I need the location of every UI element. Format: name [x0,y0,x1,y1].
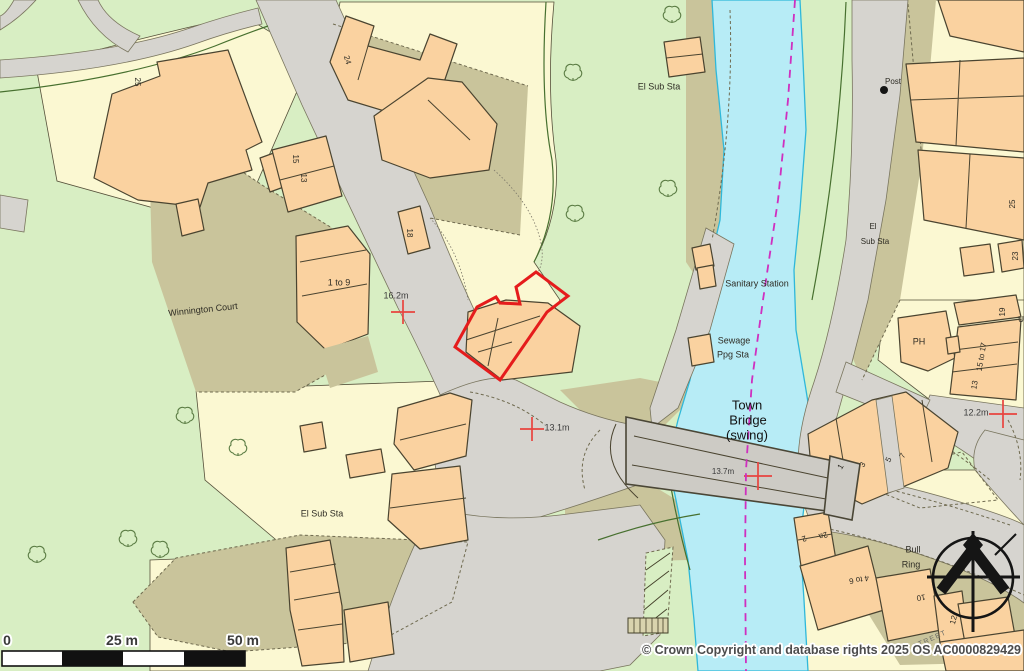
post-dot-icon [880,86,888,94]
map-canvas[interactable]: Winnington Court25241513181 to 916.2mEl … [0,0,1024,671]
scale-tick-50: 50 m [227,632,259,648]
map-base-layer [0,0,1024,671]
scale-tick-25: 25 m [106,632,138,648]
copyright-attribution: © Crown Copyright and database rights 20… [642,643,1021,657]
scale-bar [2,651,245,666]
scale-tick-0: 0 [3,632,11,648]
